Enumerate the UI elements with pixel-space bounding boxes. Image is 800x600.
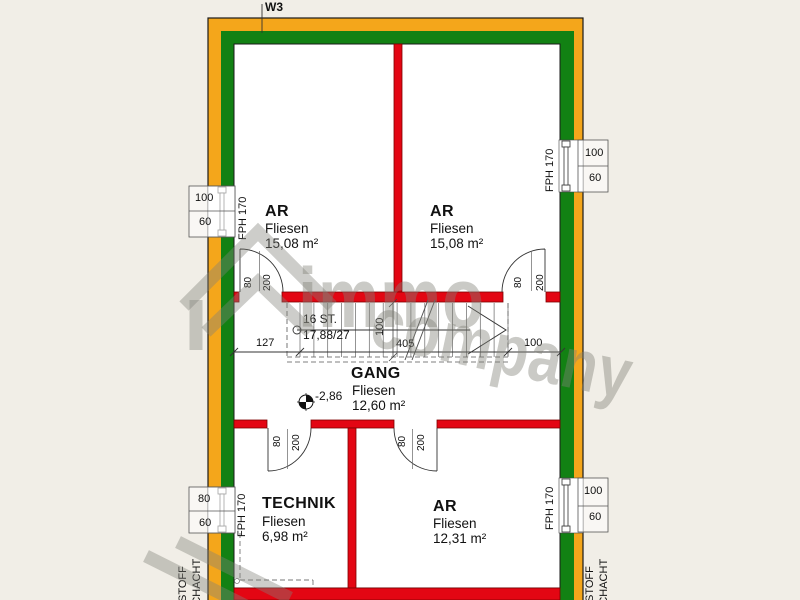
window-sill-label: FPH 170 bbox=[544, 480, 556, 530]
window-sill-label: FPH 170 bbox=[236, 487, 248, 537]
level-value-label: -2,86 bbox=[315, 390, 342, 403]
window-frame-icon bbox=[562, 526, 570, 532]
door-width-label: 80 bbox=[243, 272, 254, 288]
partition-wall-middle-left-stub bbox=[234, 292, 239, 302]
room-name-label: AR bbox=[433, 498, 457, 516]
door-height-label: 200 bbox=[291, 429, 302, 451]
wall-tag-label: W3 bbox=[265, 1, 283, 14]
dimension-run-label: 405 bbox=[396, 338, 414, 350]
window-width-label: 100 bbox=[584, 485, 602, 497]
room-name-label: GANG bbox=[351, 365, 401, 383]
room-floor-label: Fliesen bbox=[262, 515, 306, 530]
plan-linework bbox=[0, 0, 800, 600]
shaft-label-word1: STOFF bbox=[584, 558, 596, 600]
room-area-label: 12,60 m² bbox=[352, 399, 405, 414]
partition-wall-upper-vertical bbox=[394, 44, 402, 292]
window-width-label: 100 bbox=[585, 147, 603, 159]
window-glass-icon bbox=[564, 485, 568, 526]
window-sill-label: FPH 170 bbox=[544, 142, 556, 192]
room-area-label: 12,31 m² bbox=[433, 532, 486, 547]
window-glass-icon bbox=[564, 147, 568, 185]
room-name-label: AR bbox=[430, 203, 454, 221]
window-dim-box bbox=[189, 487, 235, 533]
room-name-label: TECHNIK bbox=[262, 495, 336, 513]
partition-wall-lower-vertical bbox=[348, 428, 356, 588]
stair-width-label: 100 bbox=[374, 312, 386, 336]
room-area-label: 15,08 m² bbox=[265, 237, 318, 252]
stair-steps-label: 16 ST. bbox=[303, 313, 337, 326]
door-width-label: 80 bbox=[397, 431, 408, 447]
window-width-label: 100 bbox=[195, 192, 213, 204]
window-height-label: 60 bbox=[589, 172, 601, 184]
window-frame-icon bbox=[562, 141, 570, 147]
room-floor-label: Fliesen bbox=[352, 384, 396, 399]
door-width-label: 80 bbox=[272, 431, 283, 447]
window-height-label: 60 bbox=[589, 511, 601, 523]
shaft-label-word1: STOFF bbox=[177, 558, 189, 600]
window-sill-label: FPH 170 bbox=[237, 190, 249, 240]
room-floor-label: Fliesen bbox=[430, 222, 474, 237]
room-area-label: 15,08 m² bbox=[430, 237, 483, 252]
room-floor-label: Fliesen bbox=[433, 517, 477, 532]
window-lower-left bbox=[189, 487, 235, 533]
window-height-label: 60 bbox=[199, 216, 211, 228]
window-frame-icon bbox=[562, 185, 570, 191]
floor-plan-canvas: W3 AR Fliesen 15,08 m² AR Fliesen 15,08 … bbox=[0, 0, 800, 600]
partition-wall-lower-middle bbox=[311, 420, 394, 428]
window-frame-icon bbox=[562, 479, 570, 485]
room-name-label: AR bbox=[265, 203, 289, 221]
partition-wall-middle-right-stub bbox=[546, 292, 560, 302]
door-height-label: 200 bbox=[262, 269, 273, 291]
room-area-label: 6,98 m² bbox=[262, 530, 308, 545]
stair-ratio-label: 17,88/27 bbox=[303, 329, 350, 342]
door-height-label: 200 bbox=[535, 269, 546, 291]
dimension-left-label: 127 bbox=[256, 337, 274, 349]
partition-wall-middle-main bbox=[282, 292, 503, 302]
window-height-label: 60 bbox=[199, 517, 211, 529]
room-floor-label: Fliesen bbox=[265, 222, 309, 237]
partition-wall-lower-right bbox=[437, 420, 560, 428]
shaft-label-word2: SCHACHT bbox=[191, 552, 203, 600]
dimension-right-label: 100 bbox=[524, 337, 542, 349]
bottom-exterior-wall bbox=[234, 588, 560, 600]
door-width-label: 80 bbox=[513, 272, 524, 288]
window-width-label: 80 bbox=[198, 493, 210, 505]
partition-wall-lower-left bbox=[234, 420, 267, 428]
shaft-label-word2: SCHACHT bbox=[598, 552, 610, 600]
door-height-label: 200 bbox=[416, 429, 427, 451]
